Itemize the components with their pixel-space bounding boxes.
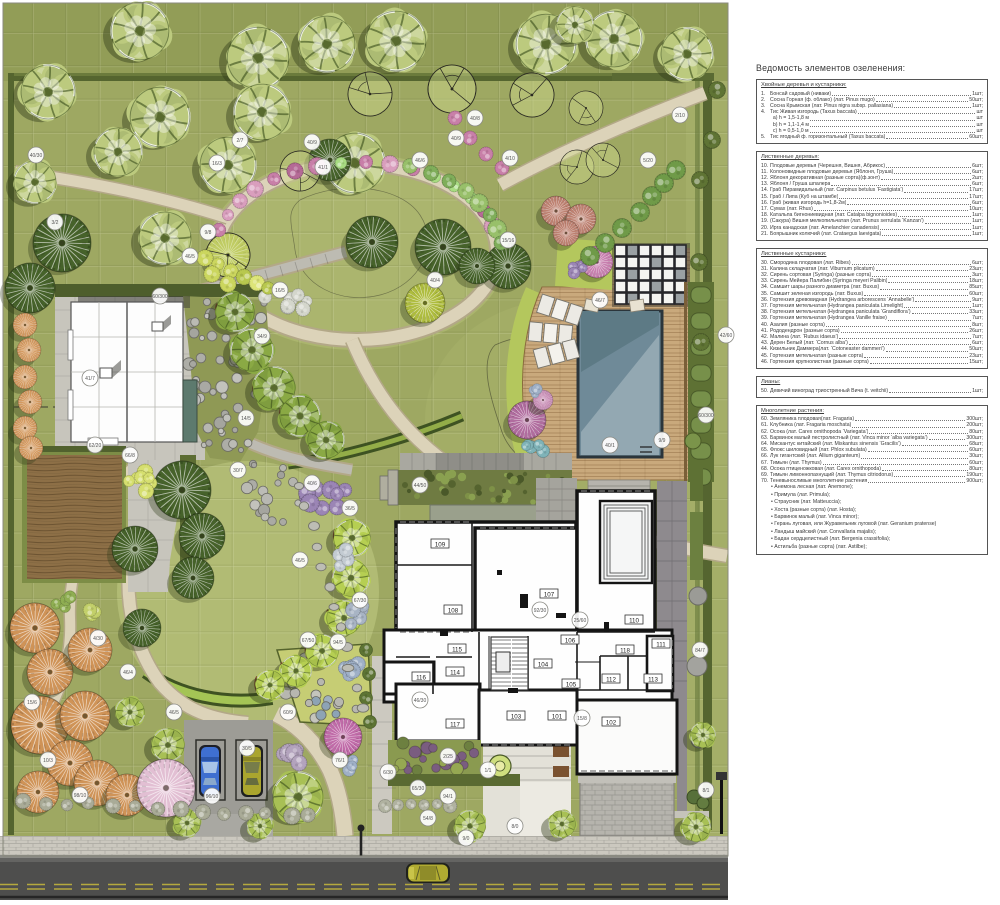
svg-text:6/30: 6/30 xyxy=(383,770,393,776)
svg-text:2/25: 2/25 xyxy=(443,754,453,760)
svg-text:40/9: 40/9 xyxy=(307,140,317,146)
svg-text:30/7: 30/7 xyxy=(233,468,243,474)
svg-text:114: 114 xyxy=(450,669,460,676)
svg-text:104: 104 xyxy=(538,661,549,668)
svg-text:15/6: 15/6 xyxy=(27,700,37,706)
svg-text:40/30: 40/30 xyxy=(30,153,43,159)
svg-text:10/3: 10/3 xyxy=(43,758,53,764)
svg-text:116: 116 xyxy=(416,674,426,681)
svg-text:15/8: 15/8 xyxy=(577,716,587,722)
svg-text:60/300: 60/300 xyxy=(698,413,714,419)
svg-text:25/60: 25/60 xyxy=(574,618,587,624)
svg-text:67/30: 67/30 xyxy=(354,598,367,604)
svg-text:42/60: 42/60 xyxy=(720,333,733,339)
svg-text:40/1: 40/1 xyxy=(605,443,615,449)
svg-text:16/5: 16/5 xyxy=(275,288,285,294)
svg-text:46/5: 46/5 xyxy=(295,558,305,564)
svg-text:46/4: 46/4 xyxy=(123,670,133,676)
svg-text:67/50: 67/50 xyxy=(302,638,315,644)
svg-text:40/8: 40/8 xyxy=(470,116,480,122)
svg-text:98/10: 98/10 xyxy=(74,793,87,799)
svg-text:46/5: 46/5 xyxy=(169,710,179,716)
svg-text:30/5: 30/5 xyxy=(242,746,252,752)
svg-text:4/30: 4/30 xyxy=(93,636,103,642)
svg-text:9/9: 9/9 xyxy=(659,438,666,444)
svg-text:103: 103 xyxy=(511,713,522,720)
svg-text:46/5: 46/5 xyxy=(185,254,195,260)
svg-text:44/50: 44/50 xyxy=(414,483,427,489)
svg-text:40/4: 40/4 xyxy=(430,278,440,284)
svg-text:96/10: 96/10 xyxy=(206,794,219,800)
svg-text:46/7: 46/7 xyxy=(595,298,605,304)
svg-text:62/20: 62/20 xyxy=(89,443,102,449)
svg-text:14/5: 14/5 xyxy=(241,416,251,422)
svg-text:8/1: 8/1 xyxy=(703,788,710,794)
svg-text:4/10: 4/10 xyxy=(505,156,515,162)
svg-text:109: 109 xyxy=(435,541,446,548)
svg-text:65/30: 65/30 xyxy=(412,786,425,792)
svg-text:94/1: 94/1 xyxy=(443,794,453,800)
svg-text:117: 117 xyxy=(450,721,460,728)
svg-text:66/8: 66/8 xyxy=(125,453,135,459)
svg-text:9/8: 9/8 xyxy=(205,230,212,236)
svg-text:92/30: 92/30 xyxy=(534,608,547,614)
svg-text:41/1: 41/1 xyxy=(318,165,328,171)
svg-text:1/1: 1/1 xyxy=(485,768,492,774)
svg-text:106: 106 xyxy=(565,637,576,644)
svg-text:40/6: 40/6 xyxy=(307,481,317,487)
svg-text:8/0: 8/0 xyxy=(512,824,519,830)
svg-text:113: 113 xyxy=(648,676,658,683)
svg-text:108: 108 xyxy=(448,607,459,614)
svg-text:46/30: 46/30 xyxy=(414,698,427,704)
svg-text:94/5: 94/5 xyxy=(333,640,343,646)
svg-text:118: 118 xyxy=(620,647,630,654)
svg-text:2/7: 2/7 xyxy=(237,138,244,144)
svg-text:101: 101 xyxy=(552,713,563,720)
svg-text:115: 115 xyxy=(452,646,462,653)
svg-text:34/9: 34/9 xyxy=(257,334,267,340)
svg-text:46/6: 46/6 xyxy=(415,158,425,164)
svg-text:54/8: 54/8 xyxy=(423,816,433,822)
svg-text:102: 102 xyxy=(606,719,617,726)
svg-text:76/1: 76/1 xyxy=(335,758,345,764)
svg-text:112: 112 xyxy=(606,676,616,683)
svg-text:105: 105 xyxy=(566,681,577,688)
svg-text:16/3: 16/3 xyxy=(212,161,222,167)
svg-text:84/7: 84/7 xyxy=(695,648,705,654)
svg-text:110: 110 xyxy=(629,617,639,624)
svg-text:15/16: 15/16 xyxy=(502,238,515,244)
svg-text:9/0: 9/0 xyxy=(463,836,470,842)
svg-text:60/9: 60/9 xyxy=(283,710,293,716)
svg-text:41/7: 41/7 xyxy=(85,376,95,382)
svg-text:5/20: 5/20 xyxy=(643,158,653,164)
svg-text:107: 107 xyxy=(544,591,555,598)
svg-text:3/2: 3/2 xyxy=(52,220,59,226)
svg-text:2/10: 2/10 xyxy=(675,113,685,119)
svg-text:111: 111 xyxy=(656,641,666,648)
svg-text:60/300: 60/300 xyxy=(152,294,168,300)
svg-text:36/5: 36/5 xyxy=(345,506,355,512)
svg-text:40/9: 40/9 xyxy=(451,136,461,142)
